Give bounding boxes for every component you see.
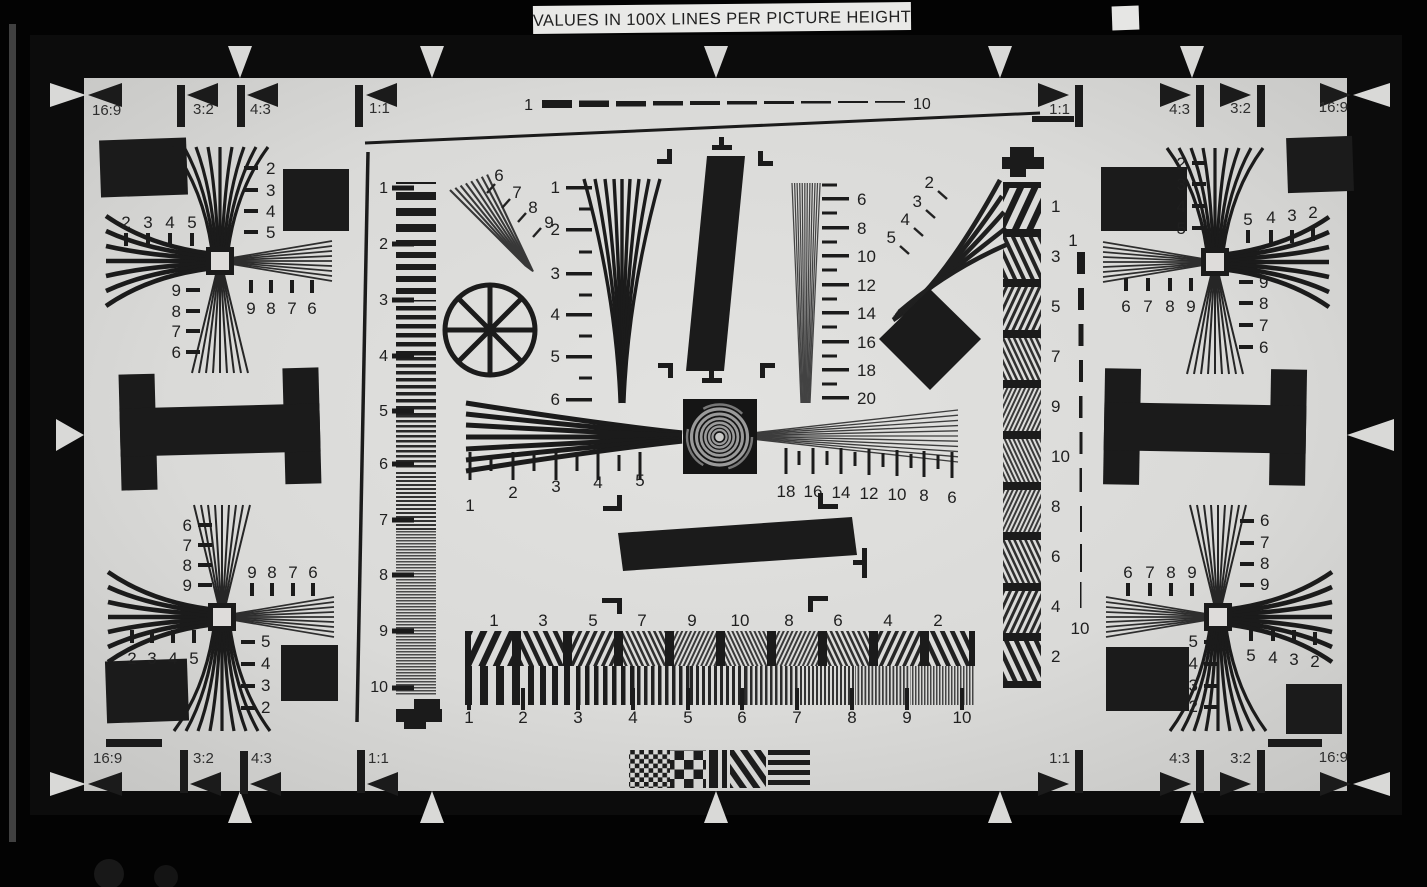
cluster-label: 9 [246, 299, 255, 318]
strip-label: 10 [1051, 447, 1070, 466]
cluster-label: 6 [1259, 338, 1268, 357]
strip-label: 8 [1051, 497, 1060, 516]
ruler-label: 6 [737, 708, 746, 727]
siemens-wheel [445, 285, 535, 375]
strip-label: 3 [1051, 247, 1060, 266]
wedge-label: 10 [857, 247, 876, 266]
cluster-label: 6 [183, 516, 192, 535]
wedge-label: 20 [857, 389, 876, 408]
aspect-label: 1:1 [368, 750, 389, 767]
aspect-label: 16:9 [1319, 749, 1348, 766]
aspect-label: 3:2 [193, 750, 214, 767]
scale-label: 10 [1071, 619, 1090, 638]
wedge-label: 2 [925, 173, 934, 192]
cluster-label: 4 [1177, 197, 1186, 216]
wedge-label: 18 [857, 361, 876, 380]
ruler-label: 1 [465, 496, 474, 515]
cluster-label: 2 [1189, 697, 1198, 716]
wedge-label: 8 [857, 219, 866, 238]
cluster-label: 3 [266, 181, 275, 200]
cluster-label: 8 [183, 556, 192, 575]
wedge-label: 8 [528, 198, 537, 217]
wedge-label: 2 [551, 220, 560, 239]
ruler-label: 1 [464, 708, 473, 727]
ruler-label: 3 [551, 477, 560, 496]
cluster-label: 9 [1186, 297, 1195, 316]
strip-label: 9 [1051, 397, 1060, 416]
scale-label: 10 [913, 96, 931, 113]
cluster-label: 8 [172, 302, 181, 321]
aspect-label: 1:1 [1049, 101, 1070, 118]
cluster-label: 7 [288, 563, 297, 582]
ruler-label: 8 [847, 708, 856, 727]
cluster-label: 9 [172, 281, 181, 300]
cluster-label: 4 [168, 649, 177, 668]
test-chart-svg: VALUES IN 100X LINES PER PICTURE HEIGHT … [0, 0, 1427, 887]
cluster-label: 6 [172, 343, 181, 362]
strip-label: 1 [1051, 197, 1060, 216]
wedge-label: 4 [551, 305, 560, 324]
cluster-label: 2 [121, 213, 130, 232]
wedge-label: 5 [887, 228, 896, 247]
ruler-label: 3 [573, 708, 582, 727]
ruler-label: 2 [508, 483, 517, 502]
wedge-label: 5 [588, 611, 597, 630]
cluster-label: 7 [287, 299, 296, 318]
cluster-label: 7 [1145, 563, 1154, 582]
ruler-label: 4 [628, 708, 637, 727]
cluster-label: 6 [1121, 297, 1130, 316]
wedge-label: 6 [857, 190, 866, 209]
scale-label: 1 [524, 97, 533, 114]
cluster-label: 4 [165, 213, 174, 232]
cluster-label: 3 [1289, 650, 1298, 669]
ruler-label: 10 [953, 708, 972, 727]
cluster-label: 4 [1268, 648, 1277, 667]
cluster-label: 2 [1308, 203, 1317, 222]
cluster-label: 5 [266, 223, 275, 242]
ruler-label: 7 [792, 708, 801, 727]
wedge-label: 6 [551, 390, 560, 409]
cluster-label: 3 [143, 213, 152, 232]
banner-fragment [1112, 6, 1140, 31]
aspect-label: 16:9 [92, 102, 121, 119]
aspect-label: 1:1 [1049, 750, 1070, 767]
cluster-label: 8 [267, 563, 276, 582]
ruler-label: 6 [947, 488, 956, 507]
cluster-label: 5 [189, 649, 198, 668]
wedge-label: 2 [933, 611, 942, 630]
cluster-label: 3 [147, 649, 156, 668]
aspect-label: 3:2 [1230, 750, 1251, 767]
cluster-label: 3 [261, 676, 270, 695]
ruler-label: 7 [379, 512, 388, 529]
cluster-label: 9 [1187, 563, 1196, 582]
aspect-label: 1:1 [369, 100, 390, 117]
aspect-label: 16:9 [1319, 99, 1348, 116]
cluster-label: 8 [1165, 297, 1174, 316]
scale-label: 1 [1068, 231, 1077, 250]
cluster-label: 7 [183, 536, 192, 555]
ruler-label: 12 [860, 484, 879, 503]
aspect-label: 3:2 [1230, 100, 1251, 117]
ruler-label: 9 [379, 623, 388, 640]
ruler-label: 4 [593, 473, 602, 492]
wedge-label: 4 [901, 210, 910, 229]
cluster-label: 8 [266, 299, 275, 318]
cluster-label: 2 [261, 698, 270, 717]
ruler-label: 5 [379, 403, 388, 420]
cluster-label: 2 [266, 159, 275, 178]
aspect-label: 4:3 [250, 101, 271, 118]
cluster-label: 4 [1189, 654, 1198, 673]
ruler-label: 5 [683, 708, 692, 727]
ruler-label: 2 [518, 708, 527, 727]
strip-label: 6 [1051, 547, 1060, 566]
strip-label: 2 [1051, 647, 1060, 666]
cluster-label: 6 [1123, 563, 1132, 582]
ruler-label: 14 [832, 483, 851, 502]
ruler-label: 1 [379, 180, 388, 197]
photo-edge-strip [9, 24, 16, 842]
ruler-label: 5 [635, 471, 644, 490]
aspect-label: 4:3 [1169, 101, 1190, 118]
ruler-label: 8 [919, 486, 928, 505]
cluster-label: 6 [1260, 511, 1269, 530]
ruler-label: 10 [370, 679, 388, 696]
strip-label: 5 [1051, 297, 1060, 316]
strip-label: 7 [1051, 347, 1060, 366]
wedge-label: 5 [551, 347, 560, 366]
cluster-label: 8 [1259, 294, 1268, 313]
ruler-label: 9 [902, 708, 911, 727]
ruler-label: 4 [379, 348, 388, 365]
cluster-label: 6 [308, 563, 317, 582]
wedge-label: 4 [883, 611, 892, 630]
cluster-label: 3 [1287, 206, 1296, 225]
wedge-label: 8 [784, 611, 793, 630]
cluster-label: 3 [1177, 175, 1186, 194]
cluster-label: 4 [266, 202, 275, 221]
ruler-label: 18 [777, 482, 796, 501]
cluster-label: 5 [261, 632, 270, 651]
wedge-label: 1 [551, 178, 560, 197]
cluster-label: 7 [1143, 297, 1152, 316]
cluster-label: 7 [1259, 316, 1268, 335]
cluster-label: 8 [1260, 554, 1269, 573]
cluster-label: 9 [247, 563, 256, 582]
wedge-label: 6 [833, 611, 842, 630]
wedge-label: 10 [731, 611, 750, 630]
iso-resolution-test-chart-photo: VALUES IN 100X LINES PER PICTURE HEIGHT … [0, 0, 1427, 887]
cluster-label: 3 [1189, 676, 1198, 695]
wedge-label: 14 [857, 304, 876, 323]
wedge-label: 9 [687, 611, 696, 630]
ruler-label: 8 [379, 567, 388, 584]
cluster-label: 5 [187, 213, 196, 232]
wedge-label: 3 [551, 264, 560, 283]
ruler-label: 6 [379, 456, 388, 473]
cluster-label: 5 [1243, 210, 1252, 229]
wedge-label: 12 [857, 276, 876, 295]
cluster-label: 9 [1259, 273, 1268, 292]
cluster-label: 2 [127, 649, 136, 668]
aspect-label: 16:9 [93, 750, 122, 767]
wedge-label: 7 [637, 611, 646, 630]
ruler-label: 2 [379, 236, 388, 253]
cluster-label: 8 [1166, 563, 1175, 582]
wedge-label: 7 [512, 183, 521, 202]
ruler-label: 3 [379, 292, 388, 309]
cluster-label: 5 [1246, 646, 1255, 665]
aspect-label: 4:3 [1169, 750, 1190, 767]
zone-plate [683, 399, 757, 474]
cluster-label: 9 [183, 576, 192, 595]
wedge-label: 3 [538, 611, 547, 630]
cluster-label: 2 [1310, 652, 1319, 671]
ruler-label: 10 [888, 485, 907, 504]
cluster-label: 4 [1266, 208, 1275, 227]
cluster-label: 2 [1177, 154, 1186, 173]
top-banner: VALUES IN 100X LINES PER PICTURE HEIGHT [533, 2, 912, 34]
aspect-label: 3:2 [193, 101, 214, 118]
wedge-label: 1 [489, 611, 498, 630]
cluster-label: 5 [1189, 632, 1198, 651]
strip-label: 4 [1051, 597, 1060, 616]
cluster-label: 4 [261, 654, 270, 673]
cluster-label: 7 [1260, 533, 1269, 552]
wedge-label: 16 [857, 333, 876, 352]
wedge-label: 3 [913, 192, 922, 211]
cluster-label: 9 [1260, 575, 1269, 594]
cluster-label: 6 [307, 299, 316, 318]
cluster-label: 7 [172, 322, 181, 341]
aspect-label: 4:3 [251, 750, 272, 767]
cluster-label: 5 [1177, 219, 1186, 238]
wedge-label: 6 [494, 166, 503, 185]
